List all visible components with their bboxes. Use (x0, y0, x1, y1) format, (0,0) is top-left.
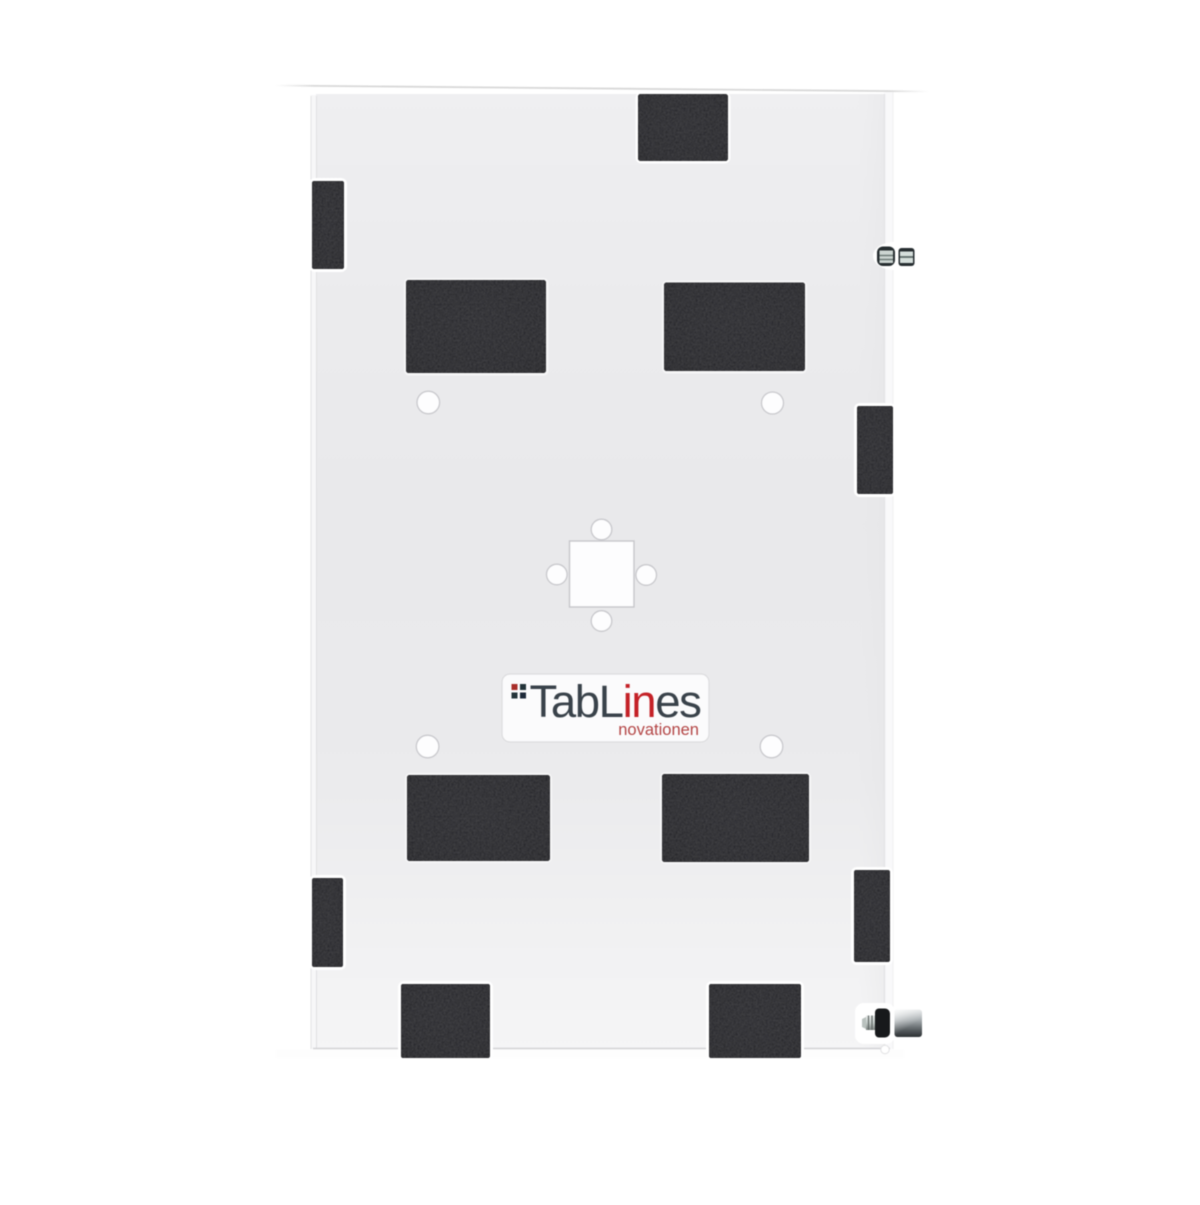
svg-text:TabLines: TabLines (530, 676, 702, 727)
svg-text:novationen: novationen (618, 721, 699, 739)
